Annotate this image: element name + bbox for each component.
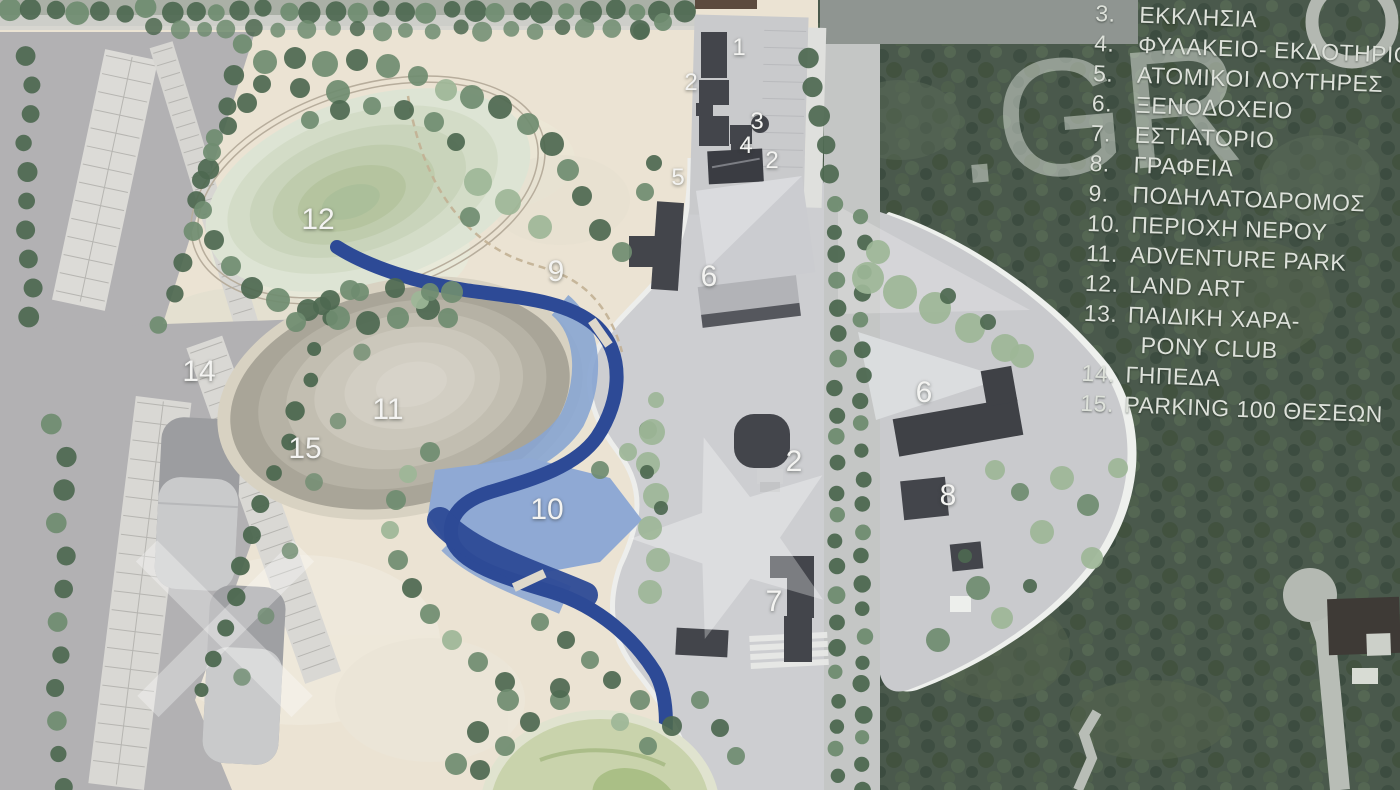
site-plan-map: 1 2 3 4 2 5 12 9 6 11 14 15 2 6 8 10 7 .… bbox=[0, 0, 1400, 790]
forest-top-road bbox=[820, 0, 1138, 44]
legend: 3.ΕΚΚΛΗΣΙΑ 4.ΦΥΛΑΚΕΙΟ- ΕΚΔΟΤΗΡΙΟ 5.ΑΤΟΜΙ… bbox=[1080, 0, 1400, 430]
